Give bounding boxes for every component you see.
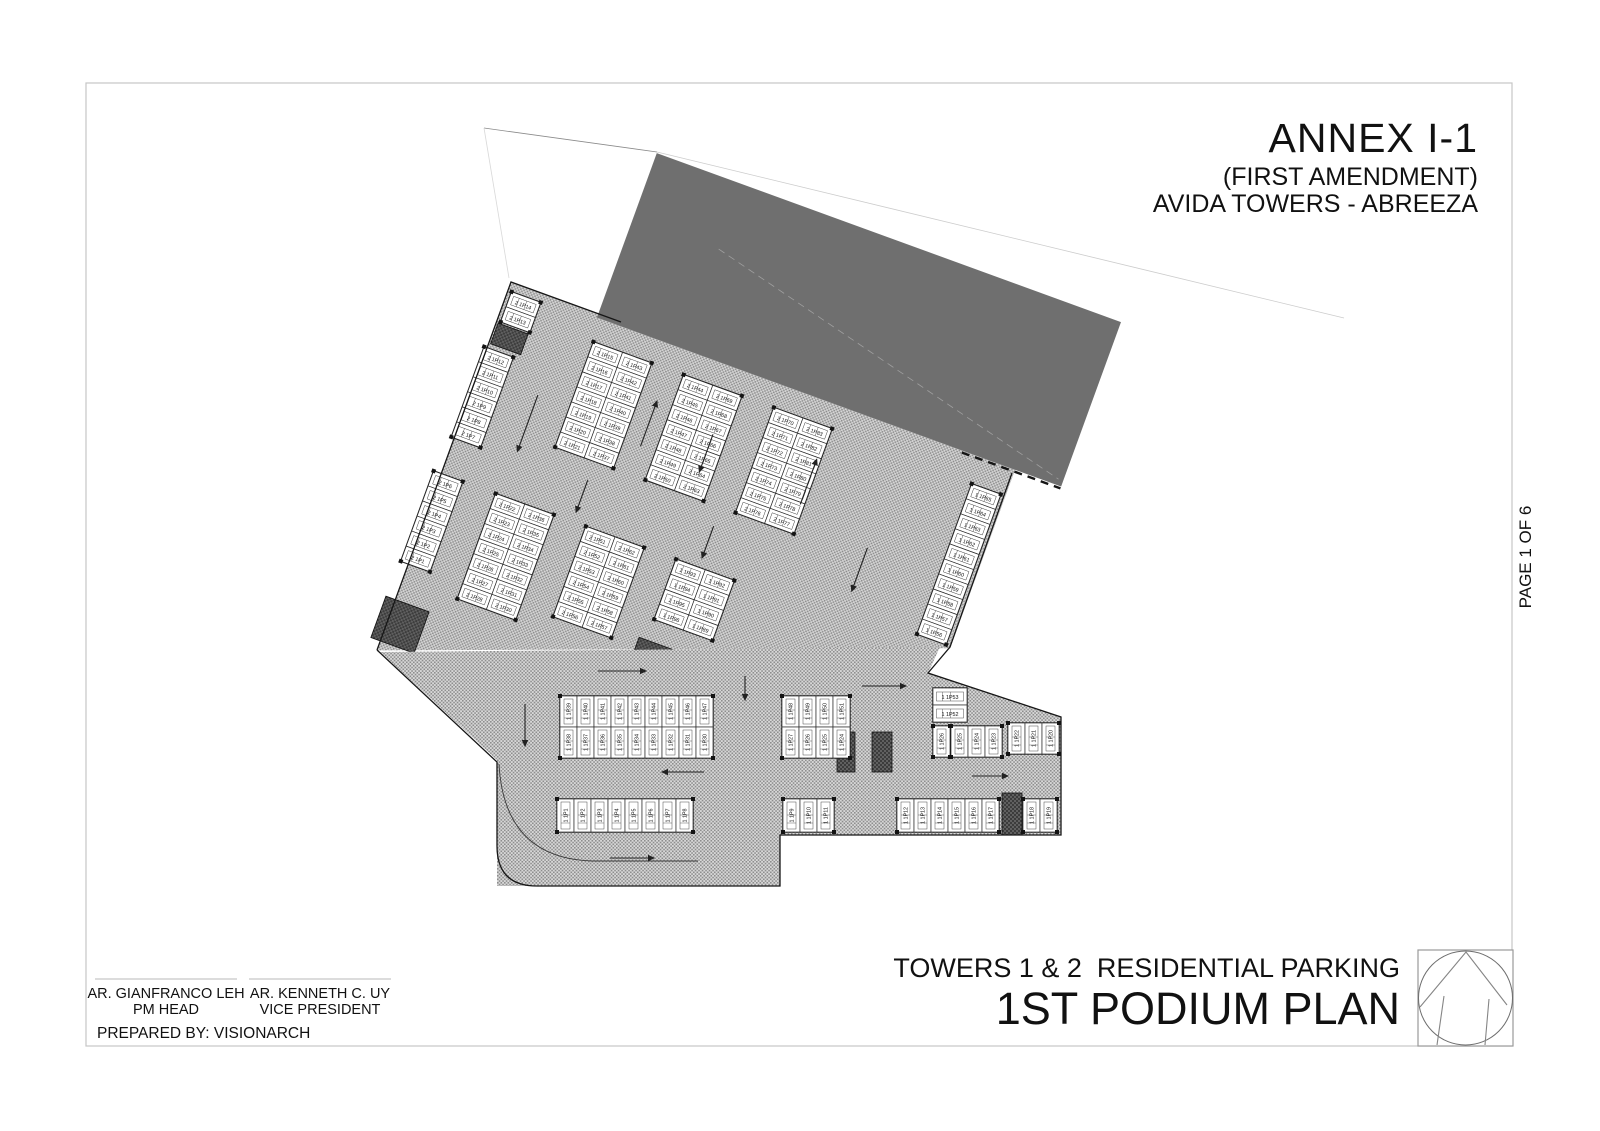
svg-text:1 1P40: 1 1P40: [584, 703, 590, 720]
signatory-role-2: VICE PRESIDENT: [260, 1002, 381, 1018]
svg-text:1 1P43: 1 1P43: [635, 703, 641, 720]
svg-text:1 1P33: 1 1P33: [652, 734, 658, 751]
project-subtitle: AVIDA TOWERS - ABREEZA: [1153, 190, 1478, 218]
annex-title: ANNEX I-1: [1269, 115, 1479, 161]
parking-stall: 1 1P36: [594, 727, 611, 758]
svg-text:1 1P24: 1 1P24: [975, 733, 981, 750]
parking-stall: 1 1P19: [1040, 799, 1057, 832]
svg-text:1 1P51: 1 1P51: [840, 703, 846, 720]
svg-text:1 1P35: 1 1P35: [618, 734, 624, 751]
svg-text:1 1P26: 1 1P26: [806, 734, 812, 751]
parking-stall: 1 1P46: [679, 696, 696, 727]
prepared-by-label: PREPARED BY: VISIONARCH: [97, 1025, 310, 1042]
sheet-svg: 2 1P142 1P132 1P122 1P112 1P102 1P92 1P8…: [0, 0, 1600, 1131]
parking-stall: 1 1P25: [951, 726, 968, 757]
parking-stall: 1 1P35: [611, 727, 628, 758]
parking-stall: 1 1P33: [645, 727, 662, 758]
stair-core: [872, 732, 892, 772]
svg-text:1 1P37: 1 1P37: [584, 734, 590, 751]
svg-text:1 1P20: 1 1P20: [1049, 730, 1055, 747]
parking-stall: 1 1P24: [833, 727, 850, 758]
parking-stall: 1 1P37: [577, 727, 594, 758]
svg-text:1 1P3: 1 1P3: [598, 808, 604, 822]
parking-stall: 1 1P40: [577, 696, 594, 727]
parking-stall: 1 1P2: [574, 799, 591, 832]
parking-stall: 1 1P24: [968, 726, 985, 757]
parking-stall: 1 1P5: [625, 799, 642, 832]
parking-stall: 1 1P10: [800, 799, 817, 832]
parking-stall: 1 1P31: [679, 727, 696, 758]
stall-block: 1 1P531 1P52: [933, 688, 967, 722]
svg-text:1 1P15: 1 1P15: [955, 807, 961, 824]
stall-block: 1 1P121 1P131 1P141 1P151 1P161 1P17: [895, 797, 1001, 834]
parking-stall: 1 1P26: [933, 726, 950, 757]
parking-stall: 1 1P30: [696, 727, 713, 758]
signatory-role-1: PM HEAD: [133, 1002, 199, 1018]
parking-stall: 1 1P41: [594, 696, 611, 727]
stall-block: 1 1P221 1P211 1P20: [1006, 721, 1061, 756]
stall-block: 1 1P91 1P101 1P11: [781, 797, 836, 834]
parking-stall: 1 1P25: [816, 727, 833, 758]
svg-text:1 1P21: 1 1P21: [1032, 730, 1038, 747]
property-line: [484, 128, 509, 278]
svg-text:1 1P24: 1 1P24: [840, 734, 846, 751]
svg-text:1 1P50: 1 1P50: [823, 703, 829, 720]
svg-text:1 1P30: 1 1P30: [703, 734, 709, 751]
svg-text:1 1P34: 1 1P34: [635, 734, 641, 751]
parking-stall: 1 1P42: [611, 696, 628, 727]
parking-stall: 1 1P7: [659, 799, 676, 832]
svg-text:1 1P17: 1 1P17: [989, 807, 995, 824]
svg-text:1 1P16: 1 1P16: [972, 807, 978, 824]
parking-stall: 1 1P12: [897, 799, 914, 832]
floor-plan: 2 1P142 1P132 1P122 1P112 1P102 1P92 1P8…: [367, 118, 1344, 886]
parking-stall: 1 1P26: [799, 727, 816, 758]
parking-stall: 1 1P49: [799, 696, 816, 727]
parking-stall: 1 1P3: [591, 799, 608, 832]
visionarch-logo: [1418, 950, 1513, 1046]
signatory-name-2: AR. KENNETH C. UY: [250, 986, 391, 1002]
parking-stall: 1 1P22: [1008, 723, 1025, 754]
svg-text:1 1P14: 1 1P14: [938, 807, 944, 824]
parking-stall: 1 1P16: [965, 799, 982, 832]
svg-text:1 1P31: 1 1P31: [686, 734, 692, 751]
parking-stall: 1 1P14: [931, 799, 948, 832]
svg-text:1 1P9: 1 1P9: [790, 808, 796, 822]
parking-stall: 1 1P15: [948, 799, 965, 832]
stair-core: [1002, 793, 1022, 835]
parking-stall: 1 1P43: [628, 696, 645, 727]
parking-stall: 1 1P48: [782, 696, 799, 727]
svg-text:1 1P44: 1 1P44: [652, 703, 658, 720]
svg-text:1 1P5: 1 1P5: [632, 808, 638, 822]
page-number-label: PAGE 1 OF 6: [1516, 506, 1535, 609]
svg-text:1 1P46: 1 1P46: [686, 703, 692, 720]
svg-text:1 1P26: 1 1P26: [940, 733, 946, 750]
parking-stall: 1 1P11: [817, 799, 834, 832]
parking-stall: 1 1P6: [642, 799, 659, 832]
svg-text:1 1P47: 1 1P47: [703, 703, 709, 720]
svg-text:1 1P7: 1 1P7: [666, 808, 672, 822]
parking-stall: 1 1P23: [985, 726, 1002, 757]
parking-stall: 1 1P27: [782, 727, 799, 758]
svg-text:1 1P41: 1 1P41: [601, 703, 607, 720]
parking-stall: 1 1P1: [557, 799, 574, 832]
parking-stall: 1 1P8: [676, 799, 693, 832]
parking-stall: 1 1P34: [628, 727, 645, 758]
parking-stall: 1 1P39: [560, 696, 577, 727]
parking-stall: 1 1P21: [1025, 723, 1042, 754]
svg-text:1 1P27: 1 1P27: [789, 734, 795, 751]
signatory-name-1: AR. GIANFRANCO LEH: [87, 986, 244, 1002]
parking-stall: 1 1P44: [645, 696, 662, 727]
svg-text:1 1P10: 1 1P10: [807, 807, 813, 824]
sheet-title-line2: 1ST PODIUM PLAN: [996, 983, 1400, 1034]
stall-block: 1 1P181 1P19: [1021, 797, 1059, 834]
svg-text:1 1P32: 1 1P32: [669, 734, 675, 751]
svg-text:1 1P1: 1 1P1: [564, 808, 570, 822]
drawing-sheet: 2 1P142 1P132 1P122 1P112 1P102 1P92 1P8…: [0, 0, 1600, 1131]
svg-text:1 1P36: 1 1P36: [601, 734, 607, 751]
parking-stall: 1 1P51: [833, 696, 850, 727]
svg-text:1 1P13: 1 1P13: [921, 807, 927, 824]
svg-text:1 1P22: 1 1P22: [1015, 730, 1021, 747]
svg-text:1 1P38: 1 1P38: [567, 734, 573, 751]
svg-text:1 1P53: 1 1P53: [941, 695, 958, 701]
parking-stall: 1 1P20: [1042, 723, 1059, 754]
stall-block: 1 1P11 1P21 1P31 1P41 1P51 1P61 1P71 1P8: [555, 797, 695, 834]
svg-text:1 1P39: 1 1P39: [567, 703, 573, 720]
svg-text:1 1P6: 1 1P6: [649, 808, 655, 822]
sheet-title-line1: TOWERS 1 & 2 RESIDENTIAL PARKING: [893, 953, 1400, 983]
stall-block: 1 1P251 1P241 1P23: [949, 724, 1004, 759]
svg-text:1 1P11: 1 1P11: [824, 807, 830, 824]
parking-stall: 1 1P9: [783, 799, 800, 832]
svg-text:1 1P45: 1 1P45: [669, 703, 675, 720]
parking-stall: 1 1P45: [662, 696, 679, 727]
svg-text:1 1P23: 1 1P23: [992, 733, 998, 750]
parking-stall: 1 1P47: [696, 696, 713, 727]
svg-text:1 1P49: 1 1P49: [806, 703, 812, 720]
stall-block: 1 1P26: [931, 724, 952, 759]
svg-text:1 1P48: 1 1P48: [789, 703, 795, 720]
svg-text:1 1P19: 1 1P19: [1047, 807, 1053, 824]
svg-text:1 1P4: 1 1P4: [615, 808, 621, 822]
svg-text:1 1P25: 1 1P25: [823, 734, 829, 751]
svg-text:1 1P52: 1 1P52: [941, 712, 958, 718]
parking-stall: 1 1P4: [608, 799, 625, 832]
parking-stall: 1 1P17: [982, 799, 999, 832]
amendment-subtitle: (FIRST AMENDMENT): [1223, 163, 1478, 191]
svg-text:1 1P12: 1 1P12: [904, 807, 910, 824]
property-line: [484, 128, 657, 152]
svg-text:1 1P42: 1 1P42: [618, 703, 624, 720]
stall-block: 1 1P481 1P491 1P501 1P511 1P271 1P261 1P…: [780, 694, 852, 760]
parking-stall: 1 1P38: [560, 727, 577, 758]
stall-block: 1 1P391 1P401 1P411 1P421 1P431 1P441 1P…: [558, 694, 715, 760]
svg-text:1 1P18: 1 1P18: [1030, 807, 1036, 824]
svg-text:1 1P8: 1 1P8: [683, 808, 689, 822]
svg-text:1 1P2: 1 1P2: [581, 808, 587, 822]
parking-stall: 1 1P18: [1023, 799, 1040, 832]
parking-stall: 1 1P13: [914, 799, 931, 832]
parking-stall: 1 1P32: [662, 727, 679, 758]
parking-stall: 1 1P50: [816, 696, 833, 727]
svg-text:1 1P25: 1 1P25: [958, 733, 964, 750]
